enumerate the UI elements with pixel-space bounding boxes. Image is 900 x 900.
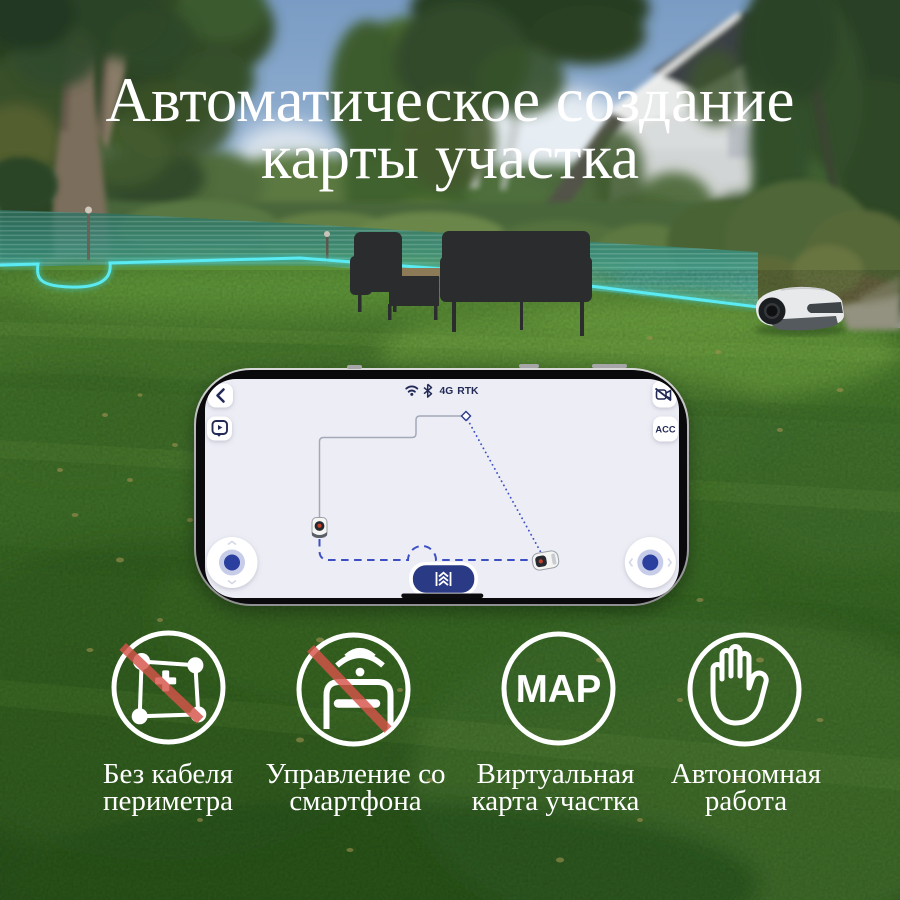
svg-text:4G: 4G bbox=[439, 386, 453, 397]
svg-text:MAP: MAP bbox=[516, 668, 602, 711]
svg-text:ACC: ACC bbox=[655, 424, 675, 434]
svg-text:RTK: RTK bbox=[457, 386, 479, 397]
